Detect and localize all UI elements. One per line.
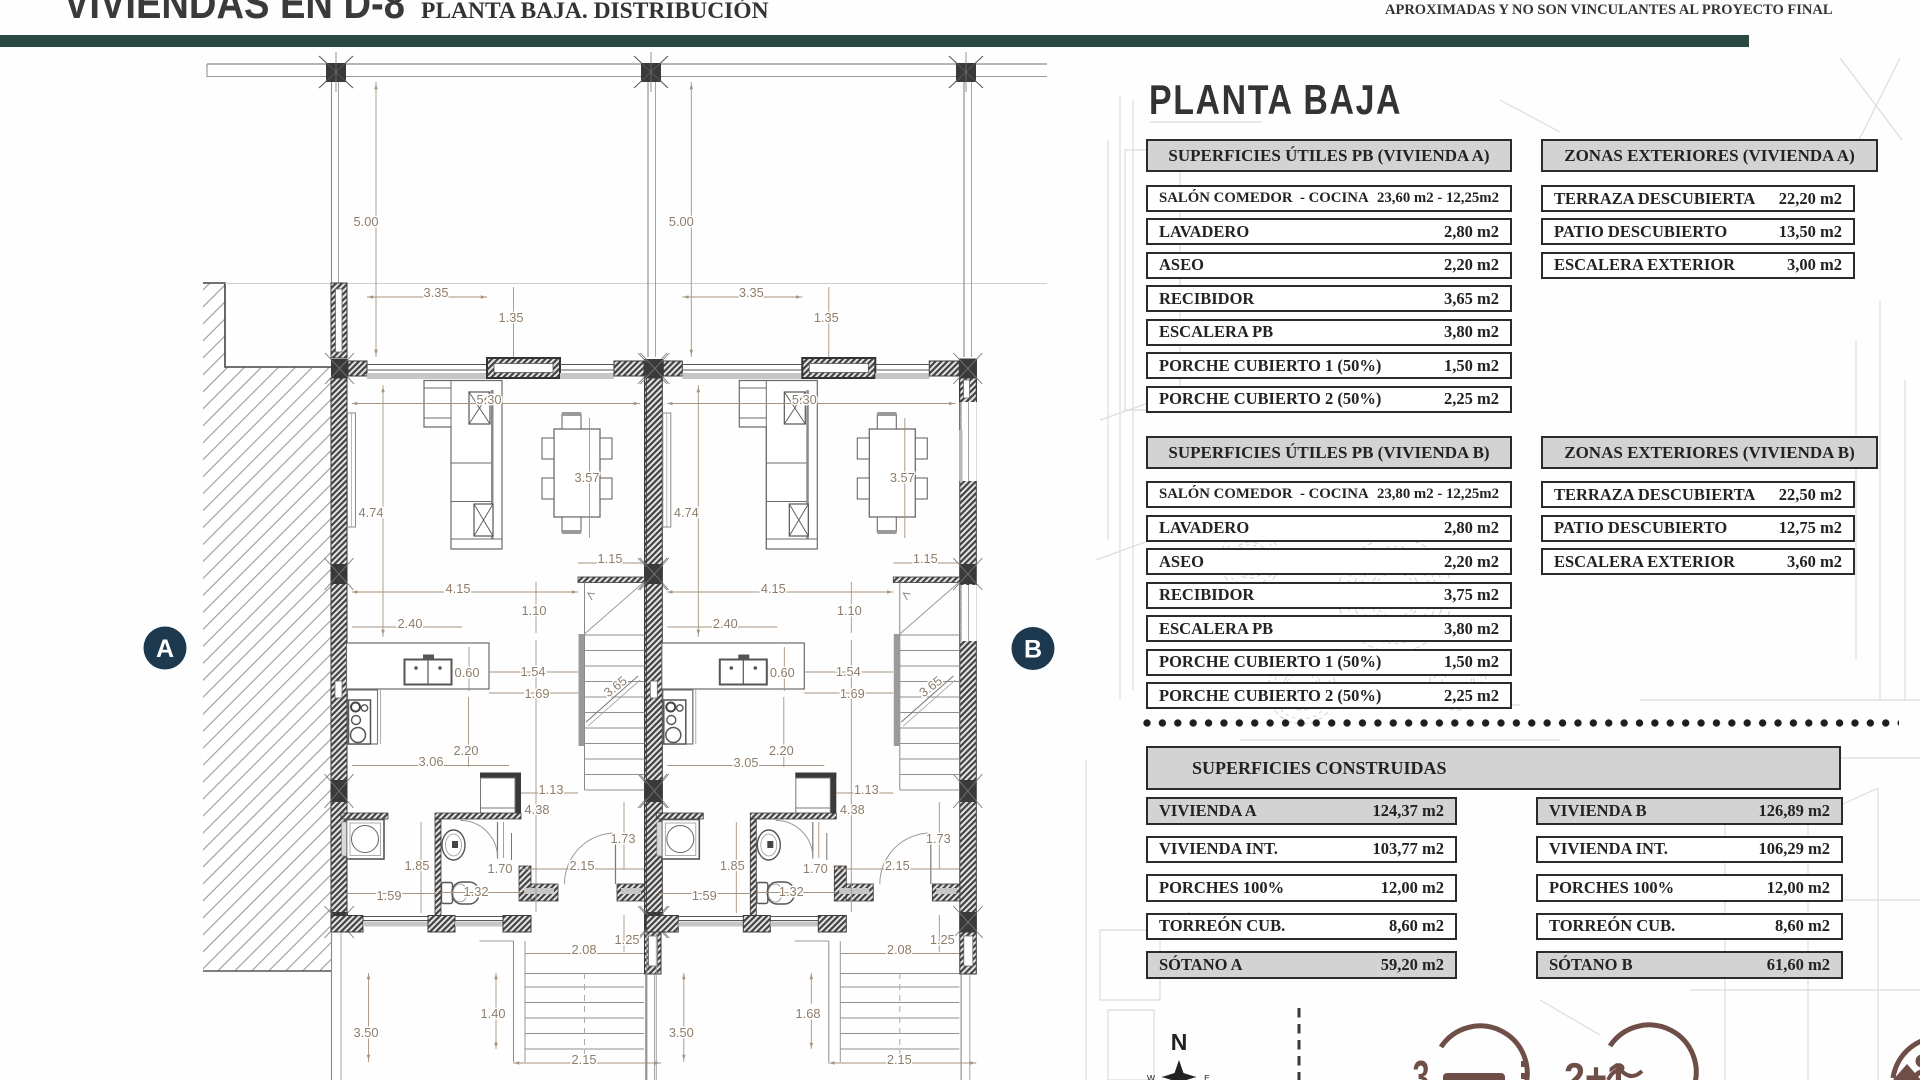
svg-text:1.10: 1.10 — [522, 603, 547, 618]
svg-text:3.50: 3.50 — [354, 1025, 379, 1040]
svg-text:4.15: 4.15 — [446, 581, 471, 596]
svg-text:2.20: 2.20 — [454, 743, 479, 758]
svg-text:3.65: 3.65 — [601, 673, 630, 700]
svg-text:1.40: 1.40 — [481, 1006, 506, 1021]
svg-text:1.69: 1.69 — [525, 686, 550, 701]
svg-text:1.85: 1.85 — [405, 858, 430, 873]
svg-text:1.68: 1.68 — [796, 1006, 821, 1021]
svg-text:3.57: 3.57 — [575, 470, 600, 485]
svg-text:3.06: 3.06 — [419, 754, 444, 769]
svg-text:1.35: 1.35 — [499, 310, 524, 325]
svg-text:1.70: 1.70 — [488, 861, 513, 876]
svg-text:4.74: 4.74 — [359, 505, 384, 520]
svg-text:1.59: 1.59 — [377, 888, 402, 903]
svg-text:2.15: 2.15 — [572, 1052, 597, 1067]
svg-text:1.54: 1.54 — [521, 664, 546, 679]
svg-text:E: E — [1204, 1073, 1210, 1080]
svg-text:N: N — [1171, 1029, 1188, 1055]
svg-text:W: W — [1147, 1073, 1155, 1080]
svg-text:3.35: 3.35 — [424, 285, 449, 300]
svg-text:1.73: 1.73 — [611, 831, 636, 846]
svg-text:A: A — [156, 635, 174, 663]
svg-text:4.38: 4.38 — [525, 802, 550, 817]
svg-text:1.25: 1.25 — [615, 932, 640, 947]
svg-text:1.13: 1.13 — [539, 782, 564, 797]
svg-text:2.08: 2.08 — [572, 942, 597, 957]
svg-text:1.15: 1.15 — [598, 551, 623, 566]
svg-text:2.15: 2.15 — [570, 858, 595, 873]
svg-text:5.00: 5.00 — [354, 214, 379, 229]
svg-text:5.30: 5.30 — [477, 392, 502, 407]
svg-text:0.60: 0.60 — [455, 665, 480, 680]
svg-text:B: B — [1024, 636, 1042, 664]
svg-text:3: 3 — [1413, 1051, 1430, 1080]
svg-text:3.05: 3.05 — [734, 755, 759, 770]
svg-text:2.40: 2.40 — [398, 616, 423, 631]
svg-text:1.32: 1.32 — [464, 884, 489, 899]
